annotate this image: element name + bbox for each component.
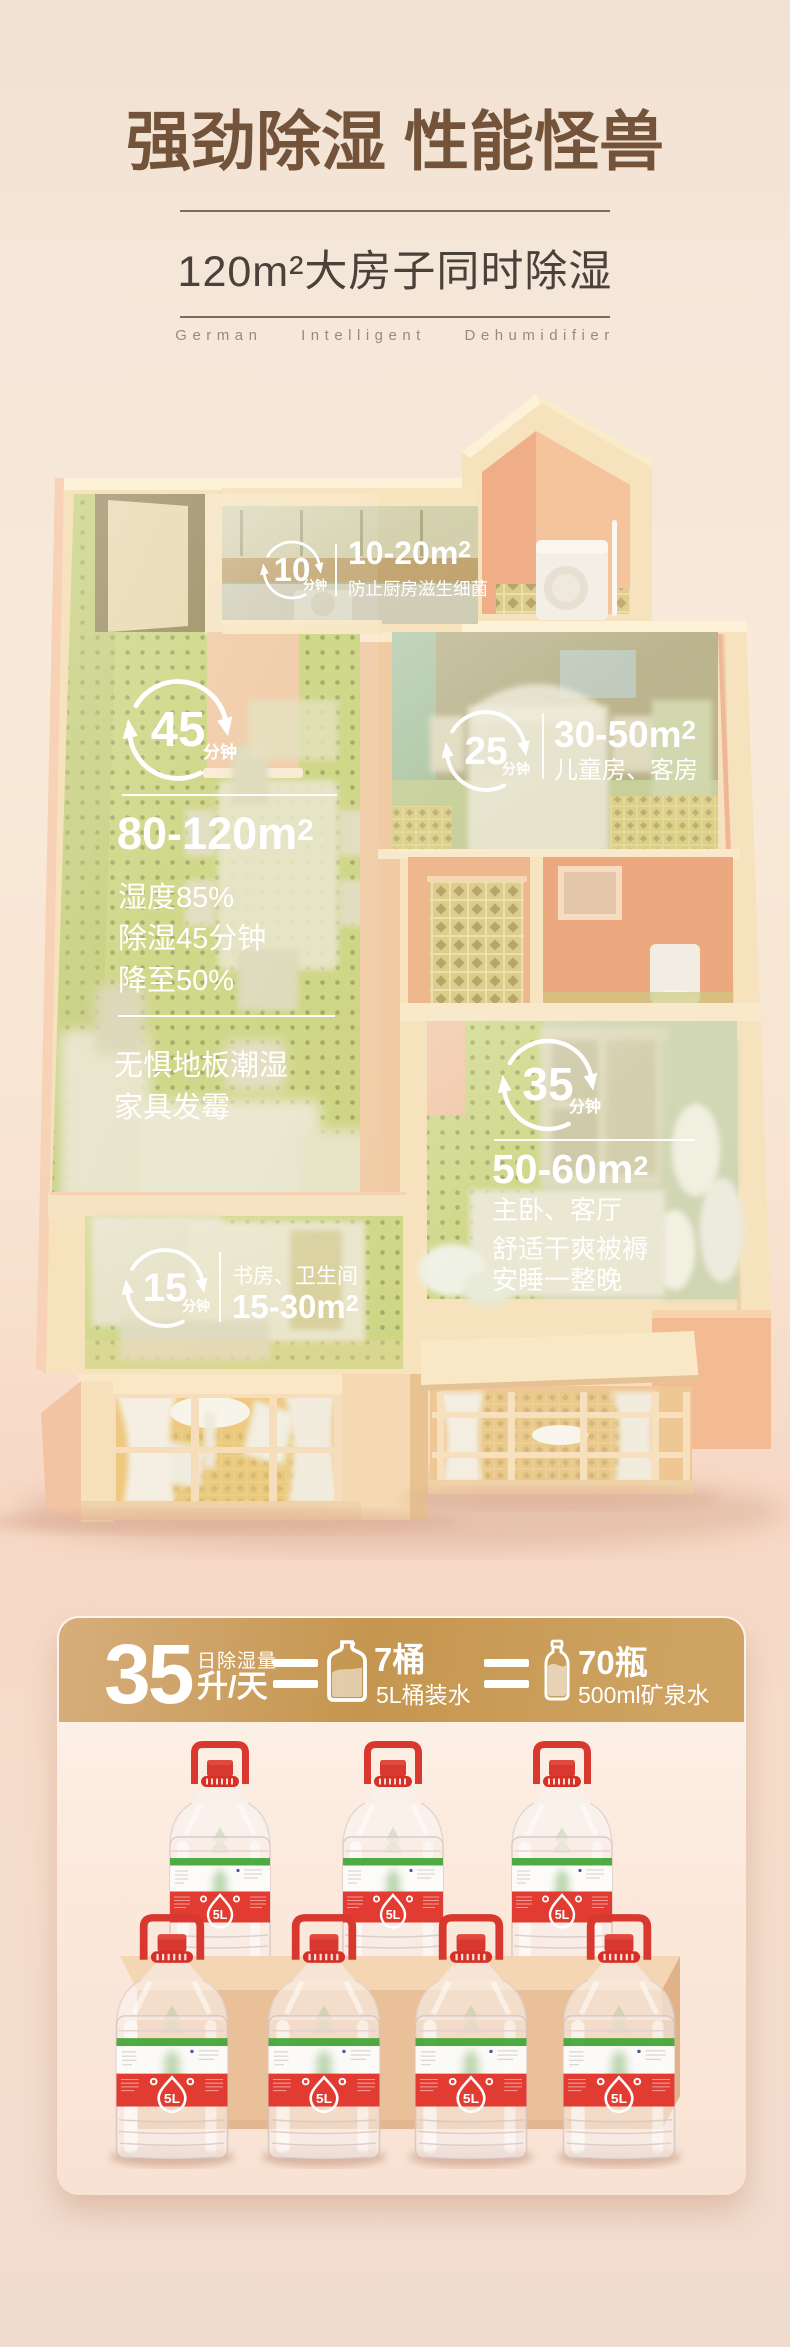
svg-text:35: 35 (522, 1058, 573, 1110)
svg-text:分钟: 分钟 (303, 577, 327, 592)
svg-text:分钟: 分钟 (182, 1298, 210, 1314)
svg-text:分钟: 分钟 (569, 1097, 601, 1116)
svg-text:分钟: 分钟 (502, 761, 530, 777)
svg-text:45: 45 (151, 703, 206, 757)
svg-text:分钟: 分钟 (203, 742, 237, 762)
svg-text:15: 15 (143, 1266, 188, 1310)
